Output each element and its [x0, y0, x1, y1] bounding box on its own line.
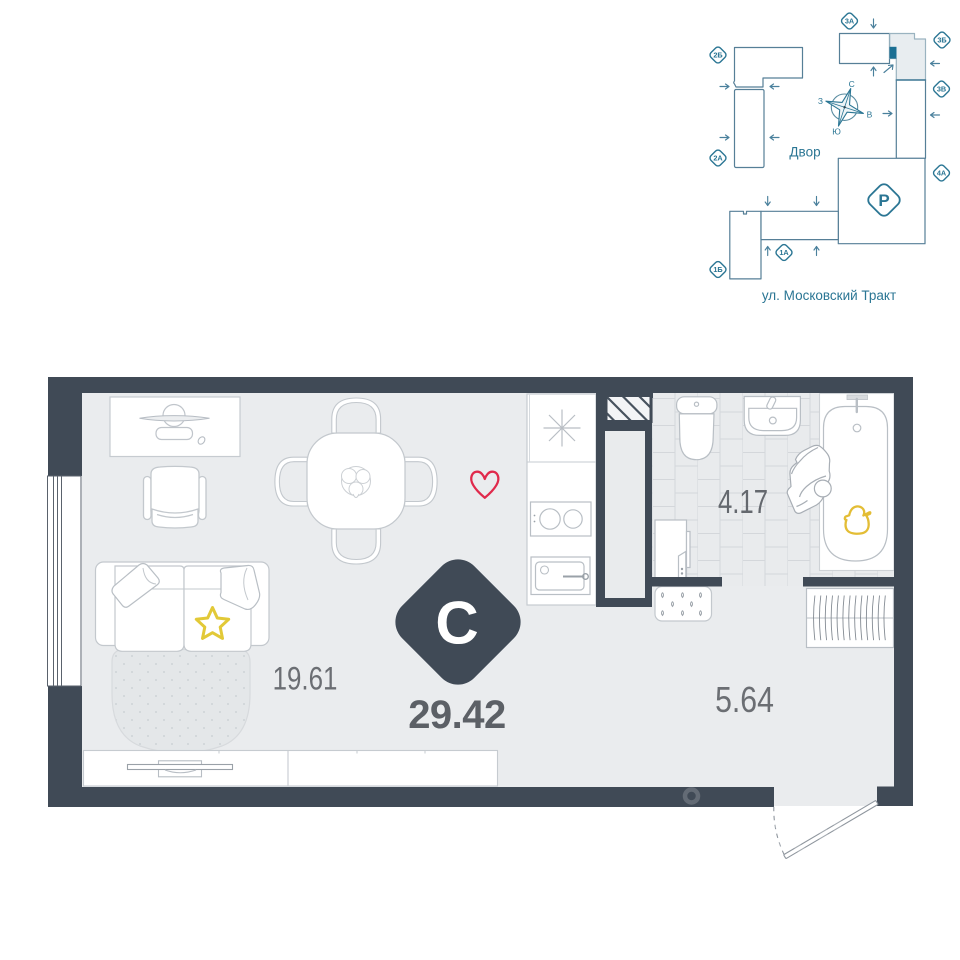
svg-text:4.17: 4.17 [718, 484, 768, 521]
svg-text:Ю: Ю [832, 127, 841, 137]
svg-text:ул. Московский Тракт: ул. Московский Тракт [762, 288, 896, 303]
svg-text:З: З [818, 96, 823, 106]
svg-text:1А: 1А [779, 248, 789, 257]
svg-text:В: В [867, 110, 873, 120]
svg-text:1Б: 1Б [713, 265, 722, 274]
svg-text:С: С [849, 79, 855, 89]
svg-text:ЖИЛФОНД: ЖИЛФОНД [615, 806, 907, 866]
svg-text:C: C [435, 590, 478, 657]
svg-text:Двор: Двор [789, 145, 820, 160]
svg-text:Р: Р [878, 191, 889, 210]
svg-text:3В: 3В [937, 85, 946, 94]
svg-text:2А: 2А [713, 154, 723, 163]
svg-text:3Б: 3Б [937, 36, 946, 45]
svg-text:19.61: 19.61 [273, 662, 338, 697]
svg-text:4А: 4А [937, 169, 947, 178]
svg-text:2Б: 2Б [713, 51, 722, 60]
svg-text:29.42: 29.42 [408, 693, 506, 737]
svg-text:3А: 3А [845, 17, 855, 26]
svg-text:5.64: 5.64 [715, 681, 774, 721]
